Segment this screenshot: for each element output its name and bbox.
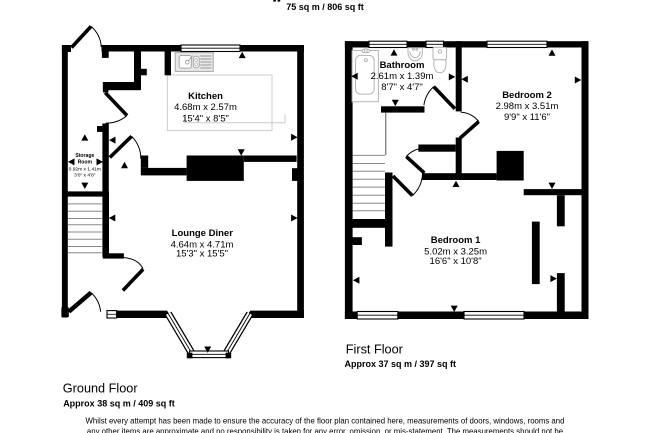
svg-text:75 sq m / 806 sq ft: 75 sq m / 806 sq ft xyxy=(286,2,364,12)
svg-text:First Floor: First Floor xyxy=(346,342,404,356)
svg-text:Whilst every attempt has been: Whilst every attempt has been made to en… xyxy=(86,417,565,426)
svg-text:4.68m x 2.57m: 4.68m x 2.57m xyxy=(174,102,237,113)
svg-text:Kitchen: Kitchen xyxy=(188,91,223,102)
svg-text:Lounge Diner: Lounge Diner xyxy=(172,228,234,239)
svg-text:Storage: Storage xyxy=(75,153,94,159)
svg-text:any other items are approximat: any other items are approximate and no r… xyxy=(87,427,563,433)
svg-text:9'9" x 11'6": 9'9" x 11'6" xyxy=(504,112,550,123)
svg-text:Approx 38 sq m / 409 sq ft: Approx 38 sq m / 409 sq ft xyxy=(63,399,175,409)
svg-text:2.61m x 1.39m: 2.61m x 1.39m xyxy=(371,71,434,82)
svg-text:2.98m x 3.51m: 2.98m x 3.51m xyxy=(496,101,559,112)
svg-text:16'6" x 10'8": 16'6" x 10'8" xyxy=(430,256,482,267)
svg-text:15'3" x 15'5": 15'3" x 15'5" xyxy=(176,249,228,260)
svg-text:Bathroom: Bathroom xyxy=(380,60,425,71)
svg-text:Approx 37 sq m / 397 sq ft: Approx 37 sq m / 397 sq ft xyxy=(345,359,457,369)
svg-text:15'4" x 8'5": 15'4" x 8'5" xyxy=(182,113,229,124)
svg-text:Bedroom 2: Bedroom 2 xyxy=(502,90,552,101)
svg-text:Ground Floor: Ground Floor xyxy=(63,381,139,395)
svg-text:Room: Room xyxy=(78,160,93,166)
svg-text:3'0" x 4'8": 3'0" x 4'8" xyxy=(74,173,96,179)
svg-text:0.92m x 1.41m: 0.92m x 1.41m xyxy=(69,166,101,172)
svg-text:8'7" x 4'7": 8'7" x 4'7" xyxy=(381,82,423,93)
svg-text:Bedroom 1: Bedroom 1 xyxy=(431,235,481,246)
